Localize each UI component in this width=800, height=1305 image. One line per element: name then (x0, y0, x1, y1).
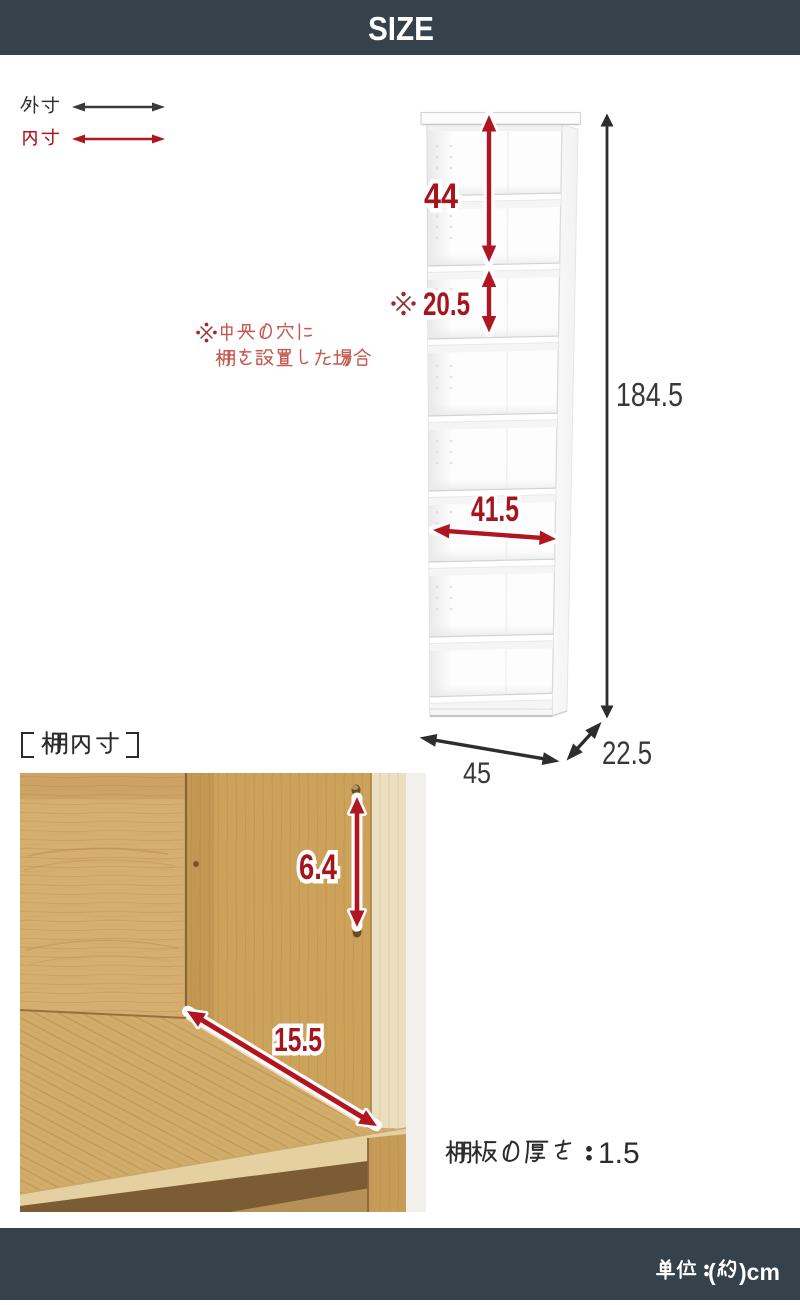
svg-text:22.5: 22.5 (602, 735, 652, 771)
svg-text:184.5: 184.5 (616, 376, 683, 413)
svg-text:20.5: 20.5 (423, 286, 470, 322)
svg-text:(: ( (708, 1259, 716, 1285)
svg-text:SIZE: SIZE (368, 10, 434, 47)
svg-text:6.4: 6.4 (299, 848, 337, 887)
svg-text:15.5: 15.5 (274, 1021, 322, 1058)
svg-text:)cm: )cm (739, 1259, 780, 1285)
svg-text:1.5: 1.5 (598, 1137, 640, 1170)
svg-text:45: 45 (463, 757, 491, 790)
svg-text:41.5: 41.5 (471, 490, 519, 529)
svg-text:44: 44 (424, 177, 458, 216)
